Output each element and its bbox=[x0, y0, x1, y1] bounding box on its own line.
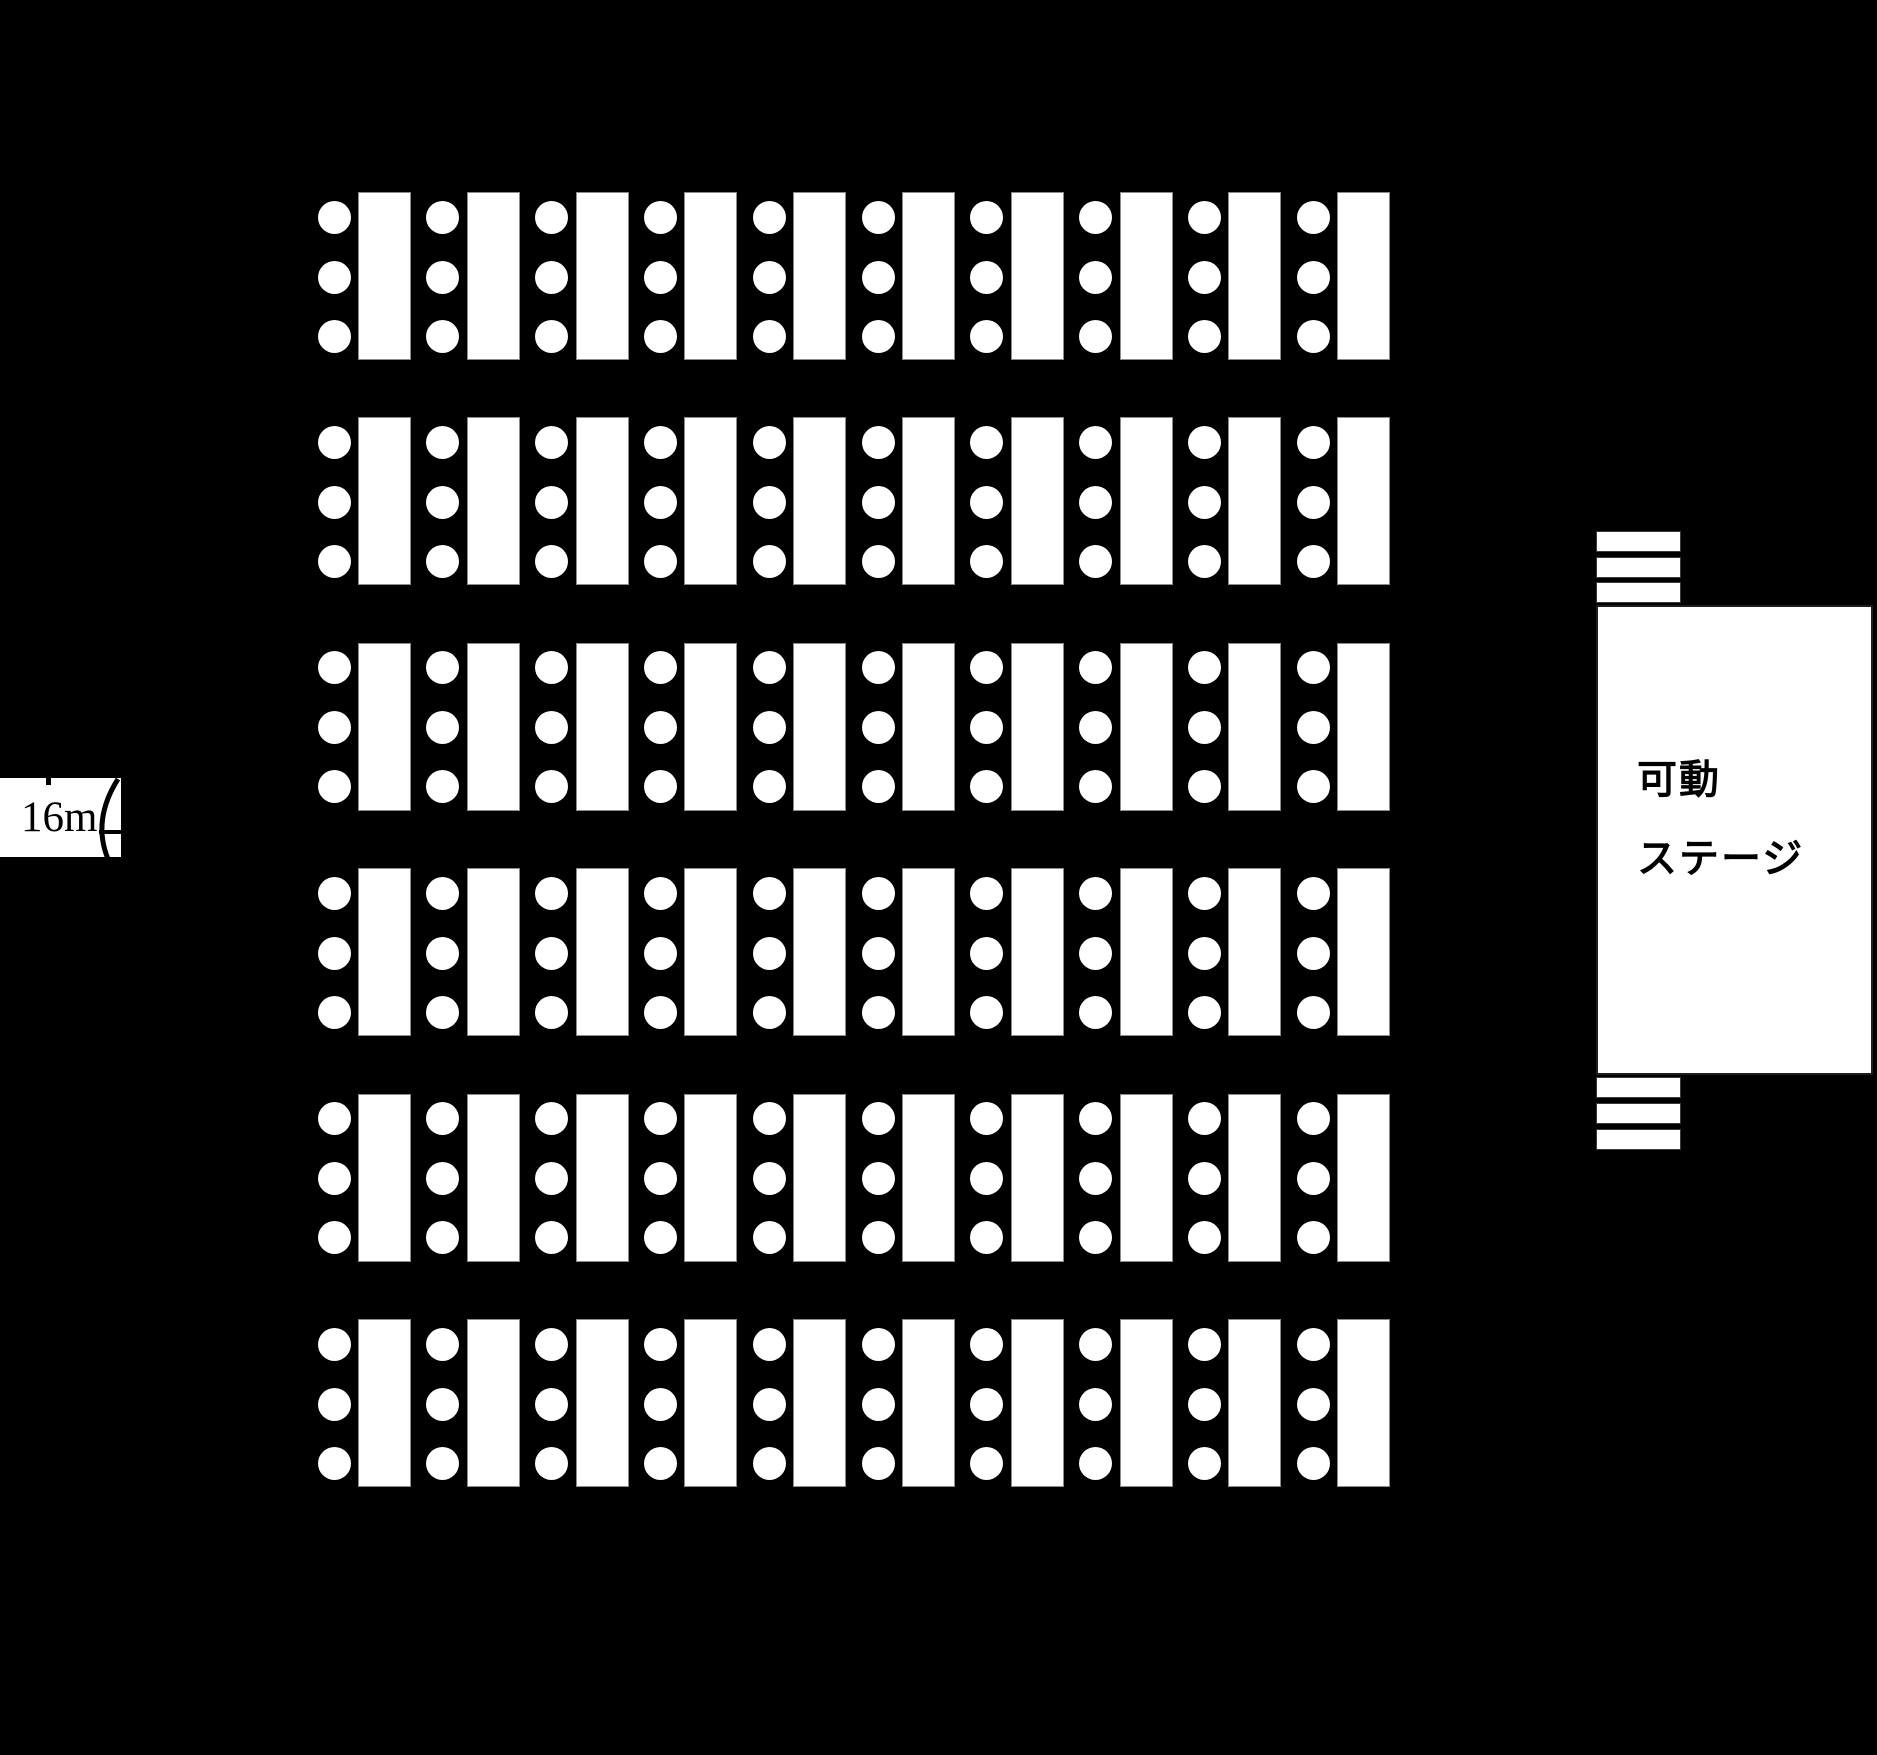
table bbox=[902, 1094, 955, 1262]
chair bbox=[535, 486, 568, 519]
chair bbox=[318, 996, 351, 1029]
table bbox=[793, 1319, 846, 1487]
chair bbox=[426, 320, 459, 353]
chair bbox=[753, 711, 786, 744]
chair bbox=[753, 261, 786, 294]
chair bbox=[644, 426, 677, 459]
chair bbox=[862, 201, 895, 234]
chair bbox=[535, 545, 568, 578]
chair bbox=[426, 261, 459, 294]
chair bbox=[1188, 1447, 1221, 1480]
chair bbox=[644, 1102, 677, 1135]
chair bbox=[426, 1447, 459, 1480]
table bbox=[1337, 192, 1390, 360]
chair bbox=[1188, 486, 1221, 519]
chair bbox=[318, 545, 351, 578]
chair bbox=[970, 770, 1003, 803]
table bbox=[1228, 1319, 1281, 1487]
chair bbox=[862, 877, 895, 910]
chair bbox=[753, 1221, 786, 1254]
chair bbox=[1297, 1221, 1330, 1254]
chair bbox=[970, 1102, 1003, 1135]
chair bbox=[644, 261, 677, 294]
chair bbox=[1079, 426, 1112, 459]
chair bbox=[318, 1388, 351, 1421]
chair bbox=[1079, 996, 1112, 1029]
table bbox=[576, 868, 629, 1036]
table bbox=[1337, 868, 1390, 1036]
chair bbox=[644, 486, 677, 519]
chair bbox=[644, 1221, 677, 1254]
chair bbox=[970, 996, 1003, 1029]
stage: 可動 ステージ bbox=[1596, 605, 1873, 1075]
chair bbox=[1188, 651, 1221, 684]
chair bbox=[535, 1328, 568, 1361]
chair bbox=[1297, 486, 1330, 519]
chair bbox=[426, 486, 459, 519]
chair bbox=[862, 320, 895, 353]
chair bbox=[1079, 320, 1112, 353]
table bbox=[467, 192, 520, 360]
chair bbox=[862, 486, 895, 519]
chair bbox=[535, 320, 568, 353]
chair bbox=[1079, 1221, 1112, 1254]
table bbox=[358, 643, 411, 811]
table bbox=[1120, 1094, 1173, 1262]
chair bbox=[426, 1388, 459, 1421]
chair bbox=[318, 937, 351, 970]
table bbox=[1337, 643, 1390, 811]
chair bbox=[970, 261, 1003, 294]
table bbox=[793, 192, 846, 360]
chair bbox=[426, 201, 459, 234]
chair bbox=[535, 711, 568, 744]
table bbox=[793, 417, 846, 585]
chair bbox=[644, 1447, 677, 1480]
chair bbox=[535, 996, 568, 1029]
chair bbox=[970, 1162, 1003, 1195]
table bbox=[902, 192, 955, 360]
stage-steps-top bbox=[1596, 531, 1681, 603]
chair bbox=[1188, 1102, 1221, 1135]
chair bbox=[1188, 877, 1221, 910]
chair bbox=[753, 486, 786, 519]
chair bbox=[753, 1102, 786, 1135]
chair bbox=[426, 1162, 459, 1195]
chair bbox=[970, 545, 1003, 578]
chair bbox=[1079, 261, 1112, 294]
table bbox=[793, 868, 846, 1036]
table bbox=[902, 1319, 955, 1487]
chair bbox=[535, 1102, 568, 1135]
chair bbox=[1297, 1388, 1330, 1421]
chair bbox=[1297, 996, 1330, 1029]
chair bbox=[426, 937, 459, 970]
stage-step-tread bbox=[1596, 557, 1681, 578]
chair bbox=[970, 877, 1003, 910]
table bbox=[467, 1319, 520, 1487]
chair bbox=[535, 201, 568, 234]
chair bbox=[644, 320, 677, 353]
chair bbox=[426, 426, 459, 459]
table bbox=[1228, 643, 1281, 811]
chair bbox=[970, 320, 1003, 353]
chair bbox=[426, 996, 459, 1029]
chair bbox=[1297, 1447, 1330, 1480]
table bbox=[467, 868, 520, 1036]
chair bbox=[862, 711, 895, 744]
chair bbox=[1297, 320, 1330, 353]
table bbox=[1228, 868, 1281, 1036]
chair bbox=[1297, 1102, 1330, 1135]
table bbox=[793, 1094, 846, 1262]
chair bbox=[318, 1328, 351, 1361]
chair bbox=[644, 1388, 677, 1421]
chair bbox=[1297, 201, 1330, 234]
chair bbox=[1079, 770, 1112, 803]
chair bbox=[318, 426, 351, 459]
chair bbox=[318, 711, 351, 744]
chair bbox=[1188, 261, 1221, 294]
chair bbox=[1297, 426, 1330, 459]
chair bbox=[535, 1221, 568, 1254]
table bbox=[1011, 643, 1064, 811]
chair bbox=[644, 545, 677, 578]
table bbox=[684, 1319, 737, 1487]
chair bbox=[644, 937, 677, 970]
table bbox=[467, 643, 520, 811]
table bbox=[576, 1319, 629, 1487]
chair bbox=[318, 770, 351, 803]
chair bbox=[1188, 545, 1221, 578]
table bbox=[358, 868, 411, 1036]
chair bbox=[644, 770, 677, 803]
chair bbox=[644, 651, 677, 684]
chair bbox=[862, 1447, 895, 1480]
chair bbox=[1188, 1388, 1221, 1421]
chair bbox=[1297, 261, 1330, 294]
chair bbox=[970, 651, 1003, 684]
table bbox=[358, 1319, 411, 1487]
table bbox=[1337, 417, 1390, 585]
chair bbox=[318, 1162, 351, 1195]
chair bbox=[1297, 877, 1330, 910]
table bbox=[793, 643, 846, 811]
chair bbox=[1079, 877, 1112, 910]
chair bbox=[1188, 711, 1221, 744]
floor-plan: 可動 ステージ 16m bbox=[0, 0, 1877, 1755]
chair bbox=[1188, 426, 1221, 459]
chair bbox=[753, 651, 786, 684]
chair bbox=[1188, 1328, 1221, 1361]
table bbox=[358, 1094, 411, 1262]
chair bbox=[426, 651, 459, 684]
table bbox=[576, 643, 629, 811]
stage-step-tread bbox=[1596, 582, 1681, 603]
chair bbox=[753, 1388, 786, 1421]
chair bbox=[1079, 1328, 1112, 1361]
table bbox=[684, 1094, 737, 1262]
chair bbox=[1297, 651, 1330, 684]
table bbox=[1011, 192, 1064, 360]
chair bbox=[862, 996, 895, 1029]
chair bbox=[753, 937, 786, 970]
chair bbox=[1188, 770, 1221, 803]
chair bbox=[644, 1162, 677, 1195]
chair bbox=[753, 877, 786, 910]
chair bbox=[862, 651, 895, 684]
table bbox=[1120, 868, 1173, 1036]
chair bbox=[318, 261, 351, 294]
table bbox=[902, 643, 955, 811]
chair bbox=[535, 261, 568, 294]
chair bbox=[1079, 651, 1112, 684]
chair bbox=[644, 711, 677, 744]
chair bbox=[318, 1221, 351, 1254]
chair bbox=[535, 651, 568, 684]
chair bbox=[1079, 486, 1112, 519]
chair bbox=[753, 545, 786, 578]
chair bbox=[862, 1221, 895, 1254]
table bbox=[1011, 1319, 1064, 1487]
chair bbox=[970, 937, 1003, 970]
chair bbox=[318, 486, 351, 519]
chair bbox=[535, 426, 568, 459]
chair bbox=[426, 1102, 459, 1135]
chair bbox=[1079, 711, 1112, 744]
chair bbox=[970, 426, 1003, 459]
chair bbox=[862, 1162, 895, 1195]
chair bbox=[535, 1162, 568, 1195]
chair bbox=[862, 1328, 895, 1361]
stage-step-tread bbox=[1596, 1077, 1681, 1098]
chair bbox=[318, 651, 351, 684]
table bbox=[684, 643, 737, 811]
stage-label-line2: ステージ bbox=[1637, 826, 1804, 884]
table bbox=[1120, 417, 1173, 585]
chair bbox=[426, 711, 459, 744]
chair bbox=[1188, 1162, 1221, 1195]
table bbox=[358, 192, 411, 360]
chair bbox=[1188, 1221, 1221, 1254]
chair bbox=[753, 426, 786, 459]
table bbox=[1011, 417, 1064, 585]
chair bbox=[1297, 937, 1330, 970]
chair bbox=[970, 1221, 1003, 1254]
chair bbox=[426, 877, 459, 910]
table bbox=[576, 417, 629, 585]
chair bbox=[862, 937, 895, 970]
chair bbox=[535, 1388, 568, 1421]
table bbox=[1228, 417, 1281, 585]
table bbox=[1337, 1319, 1390, 1487]
stage-steps-bottom bbox=[1596, 1077, 1681, 1150]
chair bbox=[970, 486, 1003, 519]
chair bbox=[318, 1447, 351, 1480]
chair bbox=[753, 201, 786, 234]
chair bbox=[318, 201, 351, 234]
dimension-arc bbox=[0, 775, 130, 863]
stage-step-tread bbox=[1596, 1103, 1681, 1124]
table bbox=[684, 417, 737, 585]
chair bbox=[1079, 1102, 1112, 1135]
chair bbox=[1188, 320, 1221, 353]
chair bbox=[970, 1447, 1003, 1480]
chair bbox=[1079, 545, 1112, 578]
chair bbox=[1188, 996, 1221, 1029]
chair bbox=[318, 877, 351, 910]
chair bbox=[644, 877, 677, 910]
chair bbox=[970, 201, 1003, 234]
chair bbox=[862, 770, 895, 803]
chair bbox=[753, 770, 786, 803]
chair bbox=[862, 1388, 895, 1421]
chair bbox=[1297, 770, 1330, 803]
chair bbox=[1188, 201, 1221, 234]
chair bbox=[753, 1328, 786, 1361]
chair bbox=[535, 770, 568, 803]
chair bbox=[535, 1447, 568, 1480]
chair bbox=[1297, 1328, 1330, 1361]
chair bbox=[753, 1162, 786, 1195]
chair bbox=[1297, 711, 1330, 744]
chair bbox=[318, 320, 351, 353]
chair bbox=[644, 996, 677, 1029]
table bbox=[576, 1094, 629, 1262]
table bbox=[902, 868, 955, 1036]
stage-label-line1: 可動 bbox=[1637, 747, 1721, 805]
table bbox=[684, 868, 737, 1036]
chair bbox=[1188, 937, 1221, 970]
table bbox=[467, 417, 520, 585]
chair bbox=[426, 1328, 459, 1361]
chair bbox=[644, 1328, 677, 1361]
table bbox=[1337, 1094, 1390, 1262]
table bbox=[1120, 1319, 1173, 1487]
chair bbox=[426, 545, 459, 578]
table bbox=[684, 192, 737, 360]
chair bbox=[970, 711, 1003, 744]
table bbox=[1228, 192, 1281, 360]
table bbox=[1120, 192, 1173, 360]
chair bbox=[862, 426, 895, 459]
chair bbox=[1079, 1388, 1112, 1421]
table bbox=[1228, 1094, 1281, 1262]
table bbox=[358, 417, 411, 585]
chair bbox=[970, 1388, 1003, 1421]
chair bbox=[1297, 545, 1330, 578]
stage-step-tread bbox=[1596, 1129, 1681, 1150]
chair bbox=[1297, 1162, 1330, 1195]
chair bbox=[970, 1328, 1003, 1361]
chair bbox=[535, 877, 568, 910]
chair bbox=[535, 937, 568, 970]
chair bbox=[1079, 1162, 1112, 1195]
table bbox=[1011, 1094, 1064, 1262]
chair bbox=[426, 770, 459, 803]
table bbox=[1120, 643, 1173, 811]
chair bbox=[644, 201, 677, 234]
table bbox=[467, 1094, 520, 1262]
chair bbox=[862, 1102, 895, 1135]
chair bbox=[753, 1447, 786, 1480]
chair bbox=[318, 1102, 351, 1135]
chair bbox=[753, 996, 786, 1029]
chair bbox=[1079, 201, 1112, 234]
chair bbox=[862, 261, 895, 294]
table bbox=[1011, 868, 1064, 1036]
table bbox=[576, 192, 629, 360]
chair bbox=[1079, 937, 1112, 970]
stage-step-tread bbox=[1596, 531, 1681, 552]
table bbox=[902, 417, 955, 585]
chair bbox=[753, 320, 786, 353]
chair bbox=[426, 1221, 459, 1254]
chair bbox=[862, 545, 895, 578]
chair bbox=[1079, 1447, 1112, 1480]
